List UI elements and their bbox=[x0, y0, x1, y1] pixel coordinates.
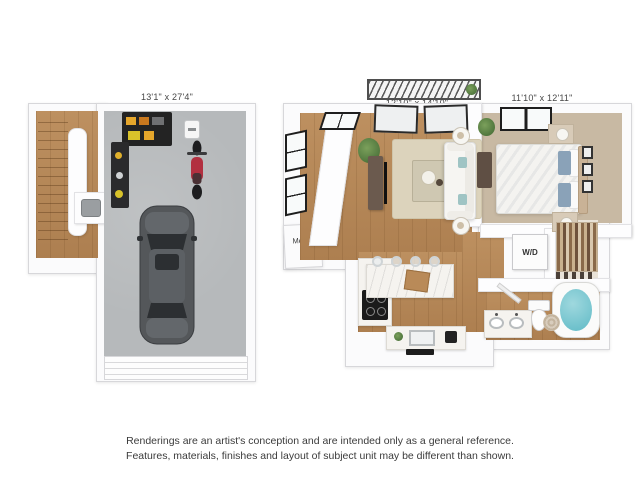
living-window-1 bbox=[285, 130, 307, 173]
nightstand-lamp bbox=[556, 128, 569, 141]
living-window-2 bbox=[285, 174, 307, 217]
tv bbox=[384, 162, 387, 204]
rack-item bbox=[115, 152, 122, 159]
kitchen-sink bbox=[409, 330, 435, 346]
garage-door bbox=[104, 356, 248, 380]
sofa-back bbox=[465, 145, 474, 215]
lamp-shade bbox=[457, 222, 464, 229]
tv-console bbox=[368, 156, 383, 210]
storage-bin bbox=[126, 117, 136, 125]
disclaimer-text: Renderings are an artist's conception an… bbox=[0, 434, 640, 464]
bathroom-vanity bbox=[484, 310, 532, 338]
bathtub-water bbox=[560, 289, 592, 331]
bed bbox=[496, 144, 582, 214]
kitchen-sink-counter bbox=[386, 326, 466, 350]
bar-stool bbox=[391, 256, 402, 267]
vanity-sink bbox=[509, 317, 524, 329]
wall-frame bbox=[582, 163, 593, 176]
disclaimer-line-2: Features, materials, finishes and layout… bbox=[0, 449, 640, 464]
storage-bin bbox=[144, 131, 154, 140]
washer-dryer-closet: W/D bbox=[512, 234, 548, 270]
staircase bbox=[38, 114, 68, 242]
motorcycle bbox=[185, 140, 209, 200]
side-table-lamp bbox=[452, 217, 470, 235]
side-table-lamp bbox=[452, 127, 470, 145]
burner bbox=[377, 307, 386, 316]
counter-plant bbox=[394, 332, 403, 341]
bedroom-dimension-label: 11'10" x 12'11" bbox=[500, 93, 584, 103]
faucet bbox=[495, 313, 498, 316]
storage-bin bbox=[139, 117, 149, 125]
stairwell-window bbox=[319, 112, 361, 130]
balcony bbox=[367, 79, 481, 100]
table-tray bbox=[421, 170, 436, 185]
wall-rack bbox=[111, 142, 129, 208]
lamp-shade bbox=[457, 132, 464, 139]
water-heater bbox=[81, 199, 101, 217]
sofa-pillow bbox=[458, 157, 467, 168]
cutting-board bbox=[404, 269, 431, 292]
bar-stool bbox=[410, 256, 421, 267]
bed-pillow-blue bbox=[558, 183, 571, 207]
closet-shoes bbox=[556, 272, 594, 279]
balcony-door-left bbox=[374, 104, 419, 134]
wall-frame bbox=[582, 180, 593, 193]
opener-detail bbox=[188, 128, 196, 131]
disclaimer-line-1: Renderings are an artist's conception an… bbox=[0, 434, 640, 449]
door-mat bbox=[406, 349, 434, 355]
dresser bbox=[477, 152, 492, 188]
wall-frame bbox=[582, 146, 593, 159]
nightstand bbox=[548, 124, 574, 144]
storage-bin bbox=[128, 131, 140, 140]
bar-stool bbox=[429, 256, 440, 267]
bedroom-plant bbox=[478, 118, 495, 136]
sofa-pillow bbox=[458, 194, 467, 205]
balcony-plant bbox=[466, 84, 477, 95]
table-decor bbox=[436, 179, 443, 186]
garage-door-opener bbox=[184, 120, 200, 139]
garage-dimension-label: 13'1" x 27'4" bbox=[127, 92, 207, 102]
bathtub bbox=[552, 282, 600, 338]
faucet bbox=[515, 313, 518, 316]
storage-shelf bbox=[122, 112, 172, 146]
floorplan-page: 13'1" x 27'4" bbox=[0, 0, 640, 480]
bed-pillow-blue bbox=[558, 151, 571, 175]
coffee-maker bbox=[445, 331, 457, 343]
rack-item bbox=[115, 190, 123, 198]
sofa bbox=[444, 142, 476, 220]
closet-hanging-clothes bbox=[556, 222, 598, 272]
rack-item bbox=[116, 172, 123, 179]
bedroom-window bbox=[500, 107, 552, 131]
burner bbox=[366, 307, 375, 316]
vanity-sink bbox=[489, 317, 504, 329]
washer-dryer-label: W/D bbox=[522, 248, 538, 257]
storage-bin bbox=[152, 117, 164, 125]
bar-stool bbox=[372, 256, 383, 267]
car bbox=[137, 204, 197, 346]
towel-stack bbox=[543, 314, 560, 331]
utility-closet bbox=[74, 192, 106, 224]
kitchen-island bbox=[366, 264, 454, 298]
